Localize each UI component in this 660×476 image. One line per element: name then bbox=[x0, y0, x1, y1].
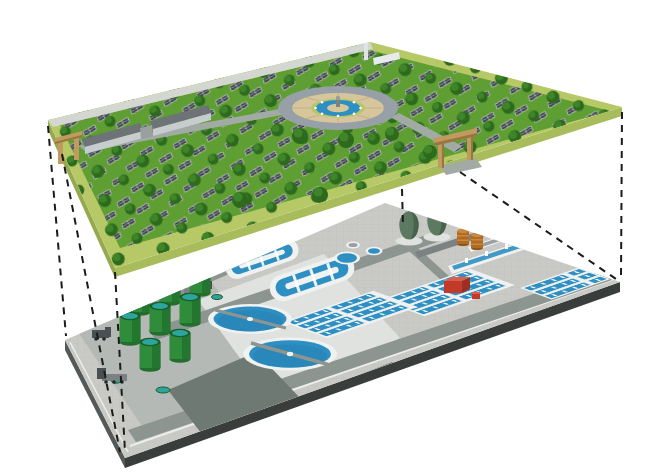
orange-tank-1 bbox=[457, 229, 469, 246]
green-tank bbox=[140, 338, 161, 372]
circular-tank-2 bbox=[346, 242, 360, 249]
secondary-clarifier-2 bbox=[243, 338, 337, 371]
green-tank bbox=[120, 312, 141, 346]
green-tank bbox=[150, 302, 171, 336]
projection-line-center-pipe bbox=[402, 189, 403, 226]
ground-basin-spot-1 bbox=[156, 387, 170, 393]
secondary-clarifier-1 bbox=[208, 304, 292, 334]
green-tank bbox=[180, 293, 201, 327]
fountain-plaza bbox=[278, 86, 398, 130]
exploded-view-rendering bbox=[0, 0, 660, 476]
scene-canvas bbox=[0, 0, 660, 476]
ground-basin-spot-3 bbox=[212, 295, 223, 300]
red-small-building bbox=[472, 292, 480, 299]
orange-tank-2 bbox=[471, 233, 483, 250]
green-tank bbox=[170, 329, 191, 363]
red-pump-building bbox=[444, 277, 470, 293]
circular-tank-1 bbox=[334, 252, 360, 265]
circular-tank-3 bbox=[366, 247, 383, 255]
